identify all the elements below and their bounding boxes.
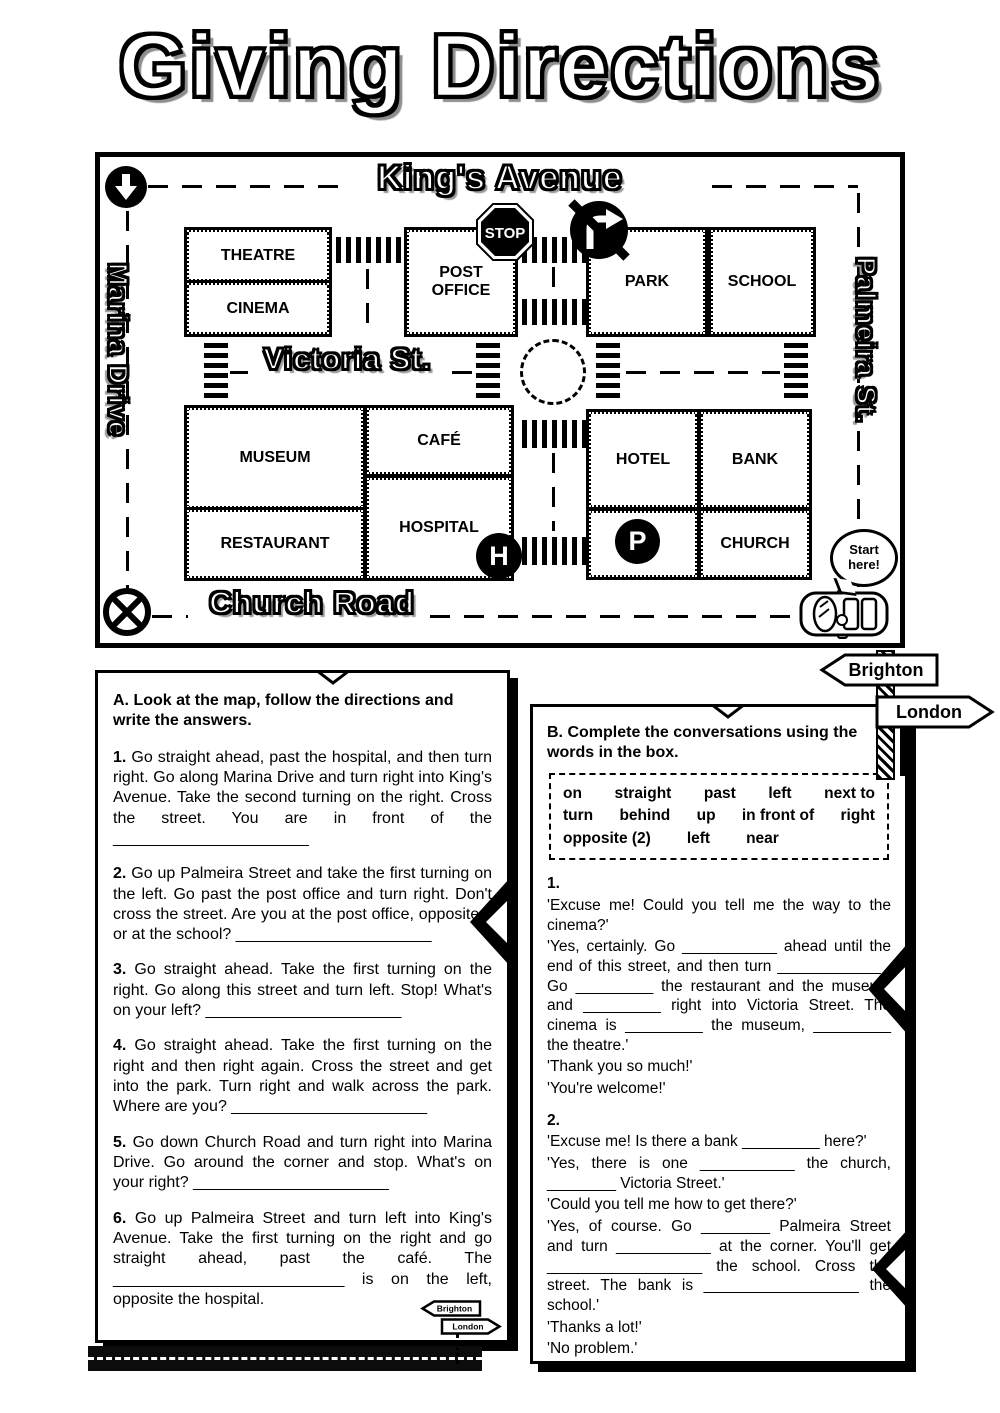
sign-london: London [874,694,996,730]
crosswalk [476,343,500,403]
word: behind [619,805,670,827]
word: right [841,805,875,827]
word: left [687,828,710,850]
building-bank: BANK [698,409,812,510]
building-label: CINEMA [226,300,289,318]
start-here-bubble: Start here! [830,529,898,587]
word: straight [615,783,672,805]
building-school: SCHOOL [708,227,816,337]
sign-brighton: Brighton [818,652,940,688]
building-theatre: THEATRE [184,227,332,284]
building-label: SCHOOL [728,273,796,291]
mini-sign-brighton-text: Brighton [437,1304,472,1314]
dialogue-line: 'Thank you so much!' [547,1057,891,1077]
brighton-london-signpost: Brighton London [812,650,1000,778]
panel-b-top-notch [663,704,793,722]
exercise-item-2: 2. Go up Palmeira Street and take the fi… [113,864,492,945]
item-text: Go straight ahead. Take the first turnin… [113,961,492,1019]
kings-avenue-centerline-right [712,185,858,188]
mini-signpost: Brighton London [420,1294,510,1366]
word-box-row: on straight past left next to [563,783,875,805]
church-road-centerline-l [152,615,188,618]
exercise-item-5: 5. Go down Church Road and turn right in… [113,1133,492,1194]
mini-sign-london: London [440,1318,502,1335]
building-label: POST OFFICE [425,264,497,300]
conversation-number: 2. [547,1111,891,1131]
exercise-item-4: 4. Go straight ahead. Take the first tur… [113,1036,492,1117]
street-label-church-road: Church Road [192,585,432,621]
dialogue-line: 'Yes, there is one ___________ the churc… [547,1154,891,1193]
start-here-text2: here! [848,558,880,573]
item-number: 4. [113,1037,126,1054]
crosswalk [204,343,228,403]
item-text: Go straight ahead. Take the first turnin… [113,1037,492,1115]
stop-text: STOP [485,225,526,242]
street-label-victoria-st: Victoria St. [240,343,455,377]
crosswalk [784,343,808,403]
church-road-centerline-r [430,615,798,618]
exercise-item-3: 3. Go straight ahead. Take the first tur… [113,960,492,1021]
street2-centerline-top [552,267,555,297]
dialogue-line: 'You're welcome!' [547,1079,891,1099]
mini-signpost-pole [456,1334,459,1364]
crosswalk [522,299,588,325]
building-label: CHURCH [720,535,789,553]
street-label-marina-drive: Marina Drive [102,263,133,437]
item-number: 2. [113,865,126,882]
building-label: HOSPITAL [399,519,479,537]
panel-b-edge-notch-2 [872,1229,908,1309]
building-restaurant: RESTAURANT [184,507,366,581]
crosswalk [336,237,404,263]
hospital-icon: H [476,533,522,579]
word: next to [824,783,875,805]
no-turn-sign-icon [568,199,630,261]
word: turn [563,805,593,827]
word: past [704,783,736,805]
mini-sign-london-text: London [452,1322,483,1332]
building-label: CAFÉ [417,432,461,450]
word-box-row: opposite (2) left near [563,828,875,850]
worksheet-page: Giving Directions King's Avenue Marina D… [0,0,1000,1413]
panel-a-top-notch [268,670,398,688]
sign-brighton-text: Brighton [849,660,924,680]
word-box: on straight past left next to turn behin… [549,773,889,860]
dialogue-line: 'Yes, of course. Go ________ Palmeira St… [547,1217,891,1315]
word: left [768,783,791,805]
panel-a-edge-notch [470,878,510,966]
street-label-kings-avenue: King's Avenue [350,159,650,198]
street1-centerline [366,269,369,333]
building-label: PARK [625,273,669,291]
city-map: King's Avenue Marina Drive Palmeira St. … [95,152,905,648]
crosswalk [522,420,588,448]
building-label: BANK [732,451,778,469]
section-a-heading: A. Look at the map, follow the direction… [113,691,492,732]
one-way-arrow-icon [104,165,148,209]
word: opposite (2) [563,828,651,850]
building-label: HOTEL [616,451,670,469]
panel-b-edge-notch-1 [868,943,908,1035]
conversation-number: 1. [547,874,891,894]
item-number: 3. [113,961,126,978]
car-icon [798,589,890,639]
dialogue-line: 'No problem.' [547,1339,891,1359]
no-stopping-sign-icon [102,587,152,637]
street2-centerline-bottom [552,453,555,531]
building-label: MUSEUM [239,449,310,467]
sign-london-text: London [896,702,962,722]
section-b-panel: B. Complete the conversations using the … [530,704,908,1364]
parking-letter: P [628,526,646,557]
roundabout [520,339,586,405]
crosswalk [522,537,588,565]
word: in front of [742,805,814,827]
exercise-item-1: 1. Go straight ahead, past the hospital,… [113,748,492,850]
conversation-2: 2. 'Excuse me! Is there a bank _________… [547,1111,891,1359]
building-label: THEATRE [221,247,295,265]
dialogue-line: 'Yes, certainly. Go ___________ ahead un… [547,937,891,1055]
building-museum: MUSEUM [184,405,366,511]
kings-avenue-centerline [148,185,350,188]
conversation-1: 1. 'Excuse me! Could you tell me the way… [547,874,891,1098]
parking-icon: P [615,519,660,564]
victoria-centerline-r [626,371,780,374]
building-hotel: HOTEL [586,409,700,510]
item-number: 6. [113,1210,126,1227]
word-box-row: turn behind up in front of right [563,805,875,827]
building-label: RESTAURANT [220,535,329,553]
dialogue-line: 'Thanks a lot!' [547,1318,891,1338]
item-text: Go up Palmeira Street and take the first… [113,865,492,943]
section-a-panel: A. Look at the map, follow the direction… [95,670,510,1343]
building-cinema: CINEMA [184,280,332,337]
hospital-letter: H [489,541,509,572]
building-church: CHURCH [698,508,812,580]
word: up [697,805,716,827]
dialogue-line: 'Could you tell me how to get there?' [547,1195,891,1215]
word: on [563,783,582,805]
item-text: Go straight ahead, past the hospital, an… [113,749,492,847]
item-text: Go down Church Road and turn right into … [113,1134,492,1192]
crosswalk [596,343,620,403]
item-number: 5. [113,1134,126,1151]
start-here-text: Start [849,543,879,558]
dialogue-line: 'Excuse me! Is there a bank _________ he… [547,1132,891,1152]
page-title: Giving Directions [0,22,1000,110]
building-cafe: CAFÉ [364,405,514,477]
dialogue-line: 'Excuse me! Could you tell me the way to… [547,896,891,935]
mini-sign-brighton: Brighton [420,1300,482,1317]
victoria-centerline-l2 [452,371,476,374]
stop-sign-icon: STOP [476,203,534,261]
item-number: 1. [113,749,126,766]
street-label-palmeira-st: Palmeira St. [850,257,881,424]
word: near [746,828,779,850]
